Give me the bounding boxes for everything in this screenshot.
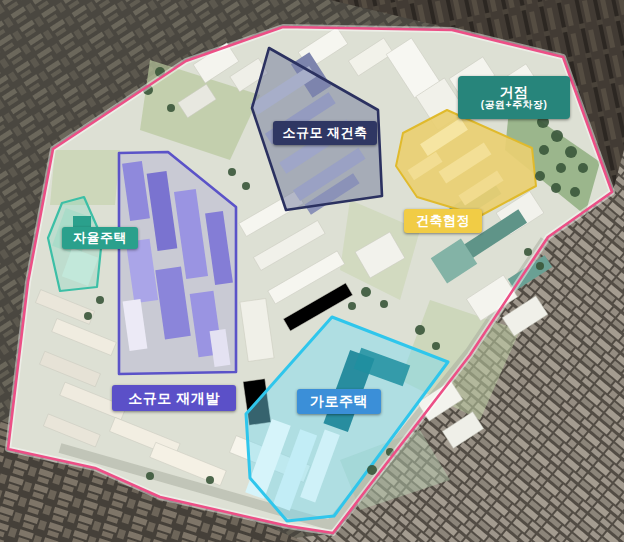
zone-label-autonomous-housing: 자율주택	[62, 227, 138, 249]
zone-label-street-housing: 가로주택	[297, 389, 381, 414]
hub-label-title: 거점	[500, 85, 529, 100]
zone-label-building-agreement: 건축협정	[404, 209, 482, 233]
zone-label-small-scale-reconstruction: 소규모 재건축	[273, 121, 377, 145]
aerial-plan-image: 소규모 재건축 소규모 재개발 자율주택 가로주택 건축협정 거점 (공원+주차…	[0, 0, 624, 542]
zone-label-hub: 거점 (공원+주차장)	[458, 76, 570, 119]
hub-label-subtitle: (공원+주차장)	[481, 100, 548, 111]
zone-label-small-scale-redevelopment: 소규모 재개발	[112, 385, 236, 411]
